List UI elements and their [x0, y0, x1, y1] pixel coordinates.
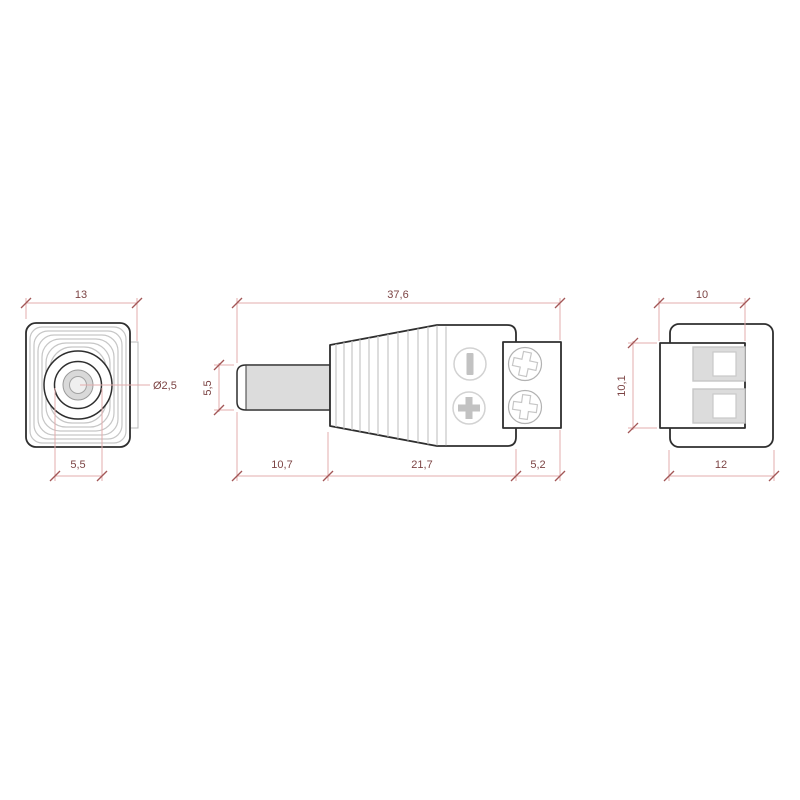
- dim-label: 10,7: [271, 459, 292, 471]
- side-view: 37,6 5,5 10,7 21,7 5,2: [202, 289, 565, 481]
- terminal-opening-bottom: [693, 389, 745, 423]
- front-view: 13 Ø2,5 5,5: [21, 289, 177, 481]
- dim-label: 5,5: [70, 459, 85, 471]
- terminal-opening-top: [693, 347, 745, 381]
- dim-side-barrel-diameter: 5,5: [202, 360, 234, 415]
- wire-hole: [713, 352, 736, 376]
- dim-block-height: 10,1: [616, 338, 657, 433]
- dim-label: 37,6: [387, 289, 408, 301]
- dim-label: 12: [715, 459, 727, 471]
- dim-label: 10: [696, 289, 708, 301]
- minus-icon: [467, 353, 474, 375]
- rear-view: 10 10,1 12: [616, 289, 779, 481]
- plug-body: [330, 325, 516, 446]
- dim-label: 21,7: [411, 459, 432, 471]
- dim-label: Ø2,5: [153, 380, 177, 392]
- dim-label: 5,5: [202, 380, 214, 395]
- technical-drawing: 13 Ø2,5 5,5: [0, 0, 800, 800]
- dim-rear-body-width: 12: [664, 450, 779, 481]
- wire-hole: [713, 394, 736, 418]
- barrel-metal: [246, 366, 329, 409]
- dim-label: 5,2: [530, 459, 545, 471]
- dim-label: 10,1: [616, 375, 628, 396]
- dim-label: 13: [75, 289, 87, 301]
